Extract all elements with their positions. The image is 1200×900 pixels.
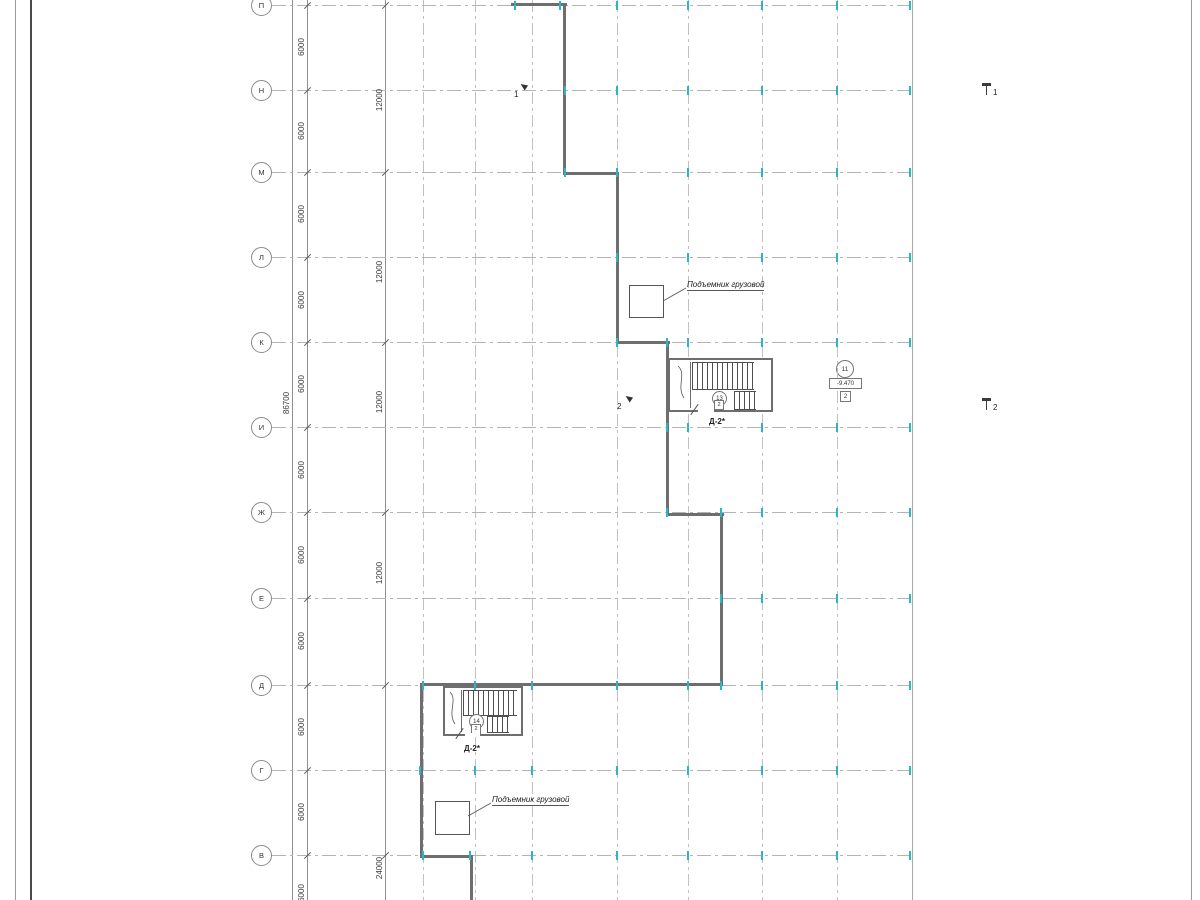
elevation-mark: -9.470 <box>829 378 862 389</box>
grid-row-label: Е <box>251 588 272 609</box>
grid-row-label: Л <box>251 247 272 268</box>
grid-row-label: Ж <box>251 502 272 523</box>
stair-door-label: Д-2* <box>700 417 734 426</box>
section-number: 1 <box>993 88 997 97</box>
grid-row-label: Г <box>251 760 272 781</box>
stair-door-label: Д-2* <box>455 744 489 753</box>
floor-plan-sheet: 13 2 Д-2* 14 2 Д-2* Подъемник грузовой П… <box>0 0 1200 900</box>
grid-row-label: Д <box>251 675 272 696</box>
freight-lift-label-upper: Подъемник грузовой <box>687 280 764 291</box>
section-stem-icon <box>986 86 987 95</box>
leader-lines <box>0 0 1200 900</box>
section-number: 2 <box>617 402 621 411</box>
grid-row-label: М <box>251 162 272 183</box>
section-marker-right-mid: 2 <box>982 398 1004 416</box>
section-stem-icon <box>986 401 987 410</box>
section-marker-top: 1 <box>513 82 533 100</box>
grid-row-label: К <box>251 332 272 353</box>
section-number: 1 <box>514 90 518 99</box>
grid-row-label: Н <box>251 80 272 101</box>
detail-mark: 2 <box>840 391 851 402</box>
grid-row-label: И <box>251 417 272 438</box>
section-marker-right-upper: 1 <box>982 83 1004 101</box>
grid-row-label: В <box>251 845 272 866</box>
section-number: 2 <box>993 403 997 412</box>
section-arrow-icon <box>624 394 633 403</box>
freight-lift-label-lower: Подъемник грузовой <box>492 795 569 806</box>
section-marker-left-mid: 2 <box>616 394 636 412</box>
elevation-value: -9.470 <box>837 381 854 387</box>
section-arrow-icon <box>519 82 528 91</box>
detail-number: 2 <box>844 394 847 400</box>
